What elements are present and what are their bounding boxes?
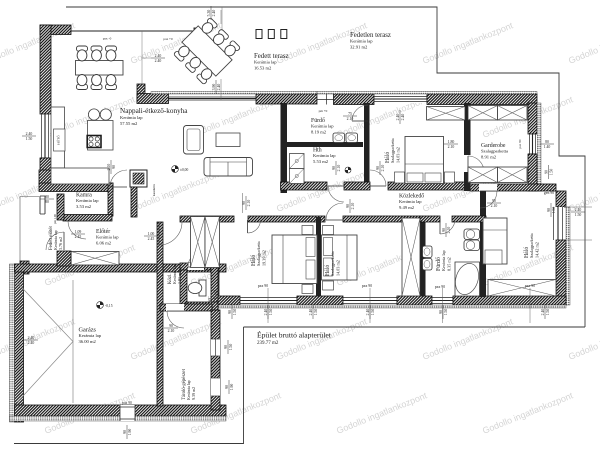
svg-text:90: 90 <box>492 199 496 203</box>
svg-text:6.06 m2: 6.06 m2 <box>96 240 112 245</box>
svg-text:1.50: 1.50 <box>229 344 233 351</box>
svg-text:2.40: 2.40 <box>155 59 162 63</box>
svg-text:14.42 m2: 14.42 m2 <box>535 242 540 258</box>
svg-text:pax 90: pax 90 <box>518 139 522 148</box>
svg-text:1.81 m2: 1.81 m2 <box>177 271 182 284</box>
svg-text:Kerámia lap: Kerámia lap <box>96 235 119 240</box>
svg-text:1.90: 1.90 <box>128 429 132 436</box>
svg-text:1.50: 1.50 <box>26 137 33 141</box>
svg-text:2.10: 2.10 <box>381 165 385 172</box>
svg-text:2.45: 2.45 <box>75 235 82 239</box>
svg-text:80: 80 <box>45 195 49 199</box>
svg-text:36.00 m2: 36.00 m2 <box>79 339 97 344</box>
svg-text:2.10: 2.10 <box>447 227 451 234</box>
svg-text:5.30: 5.30 <box>207 10 211 17</box>
svg-text:1.50: 1.50 <box>233 309 237 316</box>
svg-text:pax 90: pax 90 <box>525 284 535 288</box>
svg-text:1.50: 1.50 <box>371 309 375 316</box>
svg-text:Szalagparketta: Szalagparketta <box>529 233 534 258</box>
svg-text:2.10: 2.10 <box>491 204 498 208</box>
svg-text:1.00: 1.00 <box>148 232 155 236</box>
svg-text:80: 80 <box>45 200 49 204</box>
svg-text:pax +0: pax +0 <box>163 37 173 41</box>
svg-text:5.53 m2: 5.53 m2 <box>313 159 329 164</box>
svg-text:pm +0: pm +0 <box>319 109 328 113</box>
svg-text:2.40: 2.40 <box>575 208 582 212</box>
svg-text:pax -0: pax -0 <box>103 37 112 41</box>
svg-text:57.55 m2: 57.55 m2 <box>120 121 138 126</box>
svg-text:2.10: 2.10 <box>107 164 111 171</box>
svg-text:1.80: 1.80 <box>448 140 455 144</box>
svg-text:90: 90 <box>376 166 380 170</box>
svg-text:3.53 m2: 3.53 m2 <box>76 204 92 209</box>
svg-text:Kerámia lap: Kerámia lap <box>254 60 277 65</box>
svg-text:Épület bruttó alapterület: Épület bruttó alapterület <box>257 330 332 340</box>
svg-text:32.91 m2: 32.91 m2 <box>350 44 368 49</box>
svg-text:1.50: 1.50 <box>314 309 318 316</box>
svg-text:1.50: 1.50 <box>552 207 556 214</box>
svg-text:9.39 m2: 9.39 m2 <box>191 387 196 400</box>
svg-text:Kerámia lap: Kerámia lap <box>79 333 102 338</box>
svg-text:kandalló: kandalló <box>152 184 156 196</box>
svg-text:1.90: 1.90 <box>230 384 234 391</box>
svg-text:14.03 m2: 14.03 m2 <box>336 260 341 276</box>
svg-text:90: 90 <box>442 228 446 232</box>
svg-text:19.39 m2: 19.39 m2 <box>262 250 267 266</box>
svg-text:HŰTŐ: HŰTŐ <box>56 135 61 145</box>
svg-text:2.40: 2.40 <box>26 132 33 136</box>
svg-text:2.40: 2.40 <box>28 336 35 340</box>
svg-text:90: 90 <box>228 310 232 314</box>
svg-text:2.40: 2.40 <box>264 309 268 316</box>
svg-text:75: 75 <box>348 112 352 116</box>
svg-text:Szalagparketta: Szalagparketta <box>390 138 395 163</box>
svg-text:2.40: 2.40 <box>212 10 216 17</box>
svg-text:2.40: 2.40 <box>541 309 545 316</box>
svg-text:pm 1.00: pm 1.00 <box>53 214 57 224</box>
svg-text:Kerámia lap: Kerámia lap <box>313 153 336 158</box>
svg-text:2.10: 2.10 <box>347 117 354 121</box>
svg-text:1.40: 1.40 <box>544 145 551 149</box>
svg-text:8.91 m2: 8.91 m2 <box>481 154 497 159</box>
svg-text:1.09: 1.09 <box>75 230 82 234</box>
svg-text:pax 90: pax 90 <box>122 401 132 405</box>
svg-text:1.50: 1.50 <box>549 169 553 176</box>
svg-text:2.40: 2.40 <box>401 114 405 121</box>
svg-text:Kerámia lap: Kerámia lap <box>76 198 99 203</box>
svg-text:3.76 m2: 3.76 m2 <box>58 237 63 250</box>
svg-text:1.50: 1.50 <box>444 309 448 316</box>
svg-text:90: 90 <box>123 430 127 434</box>
svg-text:90: 90 <box>547 208 551 212</box>
svg-text:90: 90 <box>439 310 443 314</box>
svg-text:2.40: 2.40 <box>366 309 370 316</box>
svg-text:Kerámia lap: Kerámia lap <box>441 250 446 271</box>
svg-text:80: 80 <box>545 140 549 144</box>
svg-text:9.49 m2: 9.49 m2 <box>399 205 415 210</box>
svg-text:90: 90 <box>346 204 350 208</box>
svg-text:Szalagparketta: Szalagparketta <box>481 149 508 154</box>
svg-text:1.50: 1.50 <box>575 213 582 217</box>
svg-text:pax 90: pax 90 <box>362 284 372 288</box>
svg-text:8.19 m2: 8.19 m2 <box>311 129 327 134</box>
svg-text:2.45: 2.45 <box>148 237 155 241</box>
svg-text:pax 90: pax 90 <box>435 285 445 289</box>
svg-text:gen 90: gen 90 <box>544 191 554 195</box>
svg-text:2.10: 2.10 <box>168 329 175 333</box>
svg-text:Szalagparketta: Szalagparketta <box>256 241 261 266</box>
svg-text:16.53 m2: 16.53 m2 <box>254 65 272 70</box>
svg-text:2.10: 2.10 <box>351 203 355 210</box>
svg-text:Szalagparketta: Szalagparketta <box>330 251 335 276</box>
svg-text:2.40: 2.40 <box>309 309 313 316</box>
svg-text:90: 90 <box>332 166 336 170</box>
svg-text:90: 90 <box>112 165 116 169</box>
svg-text:1.41 m2: 1.41 m2 <box>212 290 217 303</box>
svg-text:90: 90 <box>224 345 228 349</box>
svg-text:Kerámia lap: Kerámia lap <box>311 124 334 129</box>
svg-text:2.40: 2.40 <box>396 114 400 121</box>
svg-text:239.77 m2: 239.77 m2 <box>257 341 279 346</box>
svg-text:2.10: 2.10 <box>337 165 341 172</box>
svg-text:2.10: 2.10 <box>247 200 251 207</box>
svg-text:Nappali-étkező-konyha: Nappali-étkező-konyha <box>120 107 188 115</box>
svg-text:90: 90 <box>225 385 229 389</box>
svg-text:8.35 m2: 8.35 m2 <box>447 257 452 271</box>
svg-text:2.10: 2.10 <box>448 145 455 149</box>
svg-text:14.03 m2: 14.03 m2 <box>396 147 401 163</box>
svg-text:2.40: 2.40 <box>155 54 162 58</box>
svg-text:2.40: 2.40 <box>217 84 221 91</box>
svg-text:Kerámia lap: Kerámia lap <box>399 199 422 204</box>
svg-text:2.40: 2.40 <box>28 341 35 345</box>
svg-text:Kerámia lap: Kerámia lap <box>120 115 143 120</box>
svg-text:1.50: 1.50 <box>269 309 273 316</box>
svg-text:1.50: 1.50 <box>546 309 550 316</box>
svg-text:Kerámia lap: Kerámia lap <box>350 39 373 44</box>
svg-text:pax 90: pax 90 <box>258 284 268 288</box>
svg-text:90: 90 <box>544 170 548 174</box>
svg-text:3.90: 3.90 <box>212 84 216 91</box>
svg-text:90: 90 <box>169 324 173 328</box>
